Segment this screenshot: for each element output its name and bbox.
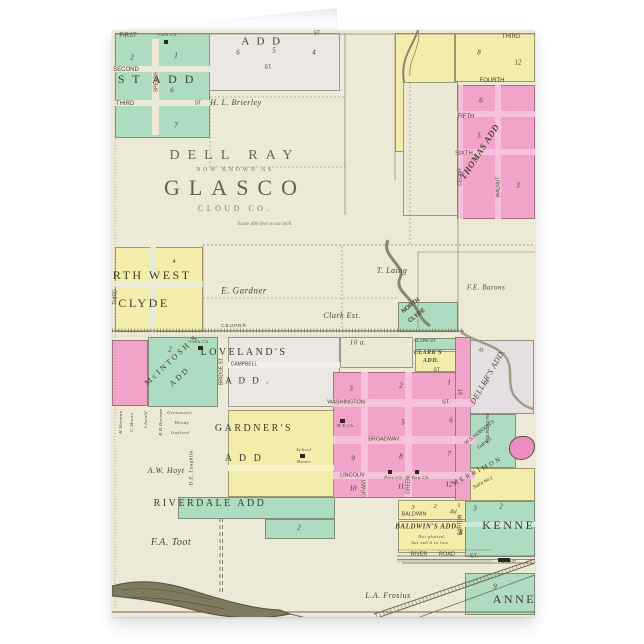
map-label: BALDWIN'S ADD. <box>395 524 459 531</box>
map-label: Pres.Ch. <box>384 476 404 481</box>
map-label: Woody <box>175 421 190 426</box>
map-label: J.Awald <box>144 411 149 429</box>
map-label: 9 <box>351 456 355 463</box>
map-label: L.A. Frosius <box>365 592 411 600</box>
map-label: RAILROAD AV. <box>486 413 491 444</box>
map-label: House <box>297 460 311 465</box>
map-label: 1 <box>447 380 451 387</box>
map-label: KENNEDY <box>482 519 535 531</box>
map-label: 2 <box>130 55 134 62</box>
map-label: R.R.Herman <box>159 408 164 436</box>
map-label: LOVELAND'S <box>201 348 288 358</box>
map-label: S T <box>118 73 142 85</box>
map-label: Gaylord <box>171 431 189 436</box>
map-label: 5 <box>401 420 405 427</box>
map-label: 2 <box>434 504 437 510</box>
map-label: 4 <box>173 259 176 265</box>
map-label: 7 <box>174 123 178 130</box>
map-label: F.E. Barons <box>467 285 505 292</box>
map-label: 1 <box>174 53 178 60</box>
building-mark <box>198 346 203 350</box>
map-label: 2 <box>297 525 301 532</box>
map-label: A D D <box>152 73 196 85</box>
map-label: GREEN <box>407 476 412 494</box>
map-label: CAMPBELL <box>231 363 258 368</box>
map-label: 3 <box>349 386 353 393</box>
map-label: THIRD <box>502 34 520 40</box>
map-label: 9 <box>493 584 497 591</box>
product-photo: FIRSTCath.Ch.SECONDTHIRDSTSPEARSS TA D D… <box>0 0 644 644</box>
map-label: 29 <box>484 381 489 386</box>
map-label: but sub'd in lots <box>411 541 448 546</box>
map-label: 12 <box>515 60 522 67</box>
map-label: 3 <box>516 183 520 190</box>
map-label: C.B.U.P.R.R. <box>221 324 247 329</box>
map-label: FIFTH <box>458 114 475 120</box>
map-label: School <box>296 448 311 453</box>
map-labels-layer: FIRSTCath.Ch.SECONDTHIRDSTSPEARSS TA D D… <box>112 30 535 617</box>
map-label: M.E.Ch. <box>337 424 356 429</box>
map-label: BRIDGE ST. <box>220 357 225 385</box>
map-label: LINCOLN <box>340 473 364 479</box>
map-label: F.A. Toot <box>151 538 191 548</box>
map-label: BROADWAY <box>368 437 399 443</box>
map-label: 6 <box>236 50 240 57</box>
map-label: 11 <box>398 484 404 491</box>
map-label: E. Gardner <box>221 287 267 296</box>
map-label: H.Herman <box>119 410 124 433</box>
map-label: GARDNER'S <box>215 424 293 434</box>
map-scale-note: Scale 400 feet to an inch. <box>188 221 342 227</box>
map-label: ST <box>314 32 320 37</box>
map-label: Cath.Ch. <box>158 33 178 38</box>
map-label: Not platted, <box>418 535 445 540</box>
map-title-now-known-as: NOW KNOWN AS <box>128 167 342 173</box>
map-title-block: DELL RAY NOW KNOWN AS GLASCO CLOUD CO. S… <box>128 148 342 227</box>
map-label: Sub'd No.1 <box>472 476 494 490</box>
map-label: Cath.Ch. <box>190 340 210 345</box>
map-label: CLARK ST <box>414 339 436 344</box>
map-label: ADD <box>168 366 192 389</box>
map-label: T. Laing <box>377 267 408 275</box>
map-label: ADD. <box>423 358 439 364</box>
map-label: H. L. Brierley <box>210 99 261 107</box>
card-back-fold <box>112 8 337 31</box>
map-label: WALNUT <box>497 177 502 198</box>
map-label: ST. <box>470 554 478 560</box>
map-label: THIRD <box>114 289 119 304</box>
map-title-town-name: GLASCO <box>128 175 342 201</box>
map-label: ST <box>460 389 465 395</box>
map-label: DELLER'S ADD. <box>469 348 507 406</box>
map-label: 43 <box>479 349 484 354</box>
map-label: 6 <box>449 418 453 425</box>
map-title-county: CLOUD CO. <box>128 204 342 213</box>
map-label: RIVER <box>411 552 428 558</box>
map-label: GRANT <box>363 479 368 497</box>
building-mark <box>164 40 168 44</box>
map-label: 10 <box>350 486 357 493</box>
map-label: ANNEX <box>493 593 535 605</box>
map-label: ST <box>195 102 201 107</box>
map-label: 7 <box>447 452 451 459</box>
map-label: 2 <box>499 504 503 511</box>
map-label: BALDWIN <box>401 512 426 518</box>
map-label: CLYDE <box>118 297 169 309</box>
building-mark <box>340 419 345 423</box>
map-label: Greinwater <box>167 411 193 416</box>
map-label: 2 <box>168 347 172 354</box>
map-label: 3 <box>412 505 415 511</box>
map-label: CLARK'S <box>414 350 442 356</box>
map-label: A D D <box>225 454 264 464</box>
map-label: 1 <box>458 503 461 509</box>
map-label: BARTON <box>459 515 464 536</box>
map-label: WASHINGTON <box>327 400 365 406</box>
map-label: RIVERDALE ADD <box>154 499 267 509</box>
map-label: THIRD <box>116 101 134 107</box>
map-label: Bap.Ch. <box>412 476 430 481</box>
map-label: A.W. Hoyt <box>148 467 185 475</box>
map-label: 8 <box>399 454 403 461</box>
map-label: A D D . <box>225 377 271 386</box>
map-label: 2 <box>399 383 403 390</box>
map-label: C.Moore <box>130 412 135 431</box>
map-label: D.E. Laughlin <box>190 451 195 486</box>
building-mark <box>498 558 510 562</box>
map-label: FIRST <box>119 33 136 39</box>
map-label: ST. <box>433 369 440 374</box>
map-label: ROAD <box>439 552 455 558</box>
map-label: 6 <box>170 88 174 95</box>
map-label: 8 <box>477 50 481 57</box>
map-title-former-name: DELL RAY <box>128 148 342 164</box>
building-mark <box>415 470 419 474</box>
map-label: 10 a. <box>350 340 367 347</box>
building-mark <box>300 454 305 458</box>
map-label: 5 <box>477 133 481 140</box>
map-label: 6 <box>479 98 483 105</box>
map-label: 5 <box>272 48 276 55</box>
map-label: 3 <box>473 506 477 513</box>
map-label: NORTH WEST <box>112 269 192 281</box>
building-mark <box>388 470 392 474</box>
map-label: 4 <box>312 50 316 57</box>
map-glasco: FIRSTCath.Ch.SECONDTHIRDSTSPEARSS TA D D… <box>112 30 535 617</box>
map-label: ST. <box>442 400 450 406</box>
greeting-card[interactable]: FIRSTCath.Ch.SECONDTHIRDSTSPEARSS TA D D… <box>112 30 535 617</box>
map-label: FOURTH <box>480 78 505 84</box>
map-label: ST. <box>264 66 271 71</box>
map-label: A D D <box>241 37 282 48</box>
map-label: Clark Est. <box>323 312 360 320</box>
